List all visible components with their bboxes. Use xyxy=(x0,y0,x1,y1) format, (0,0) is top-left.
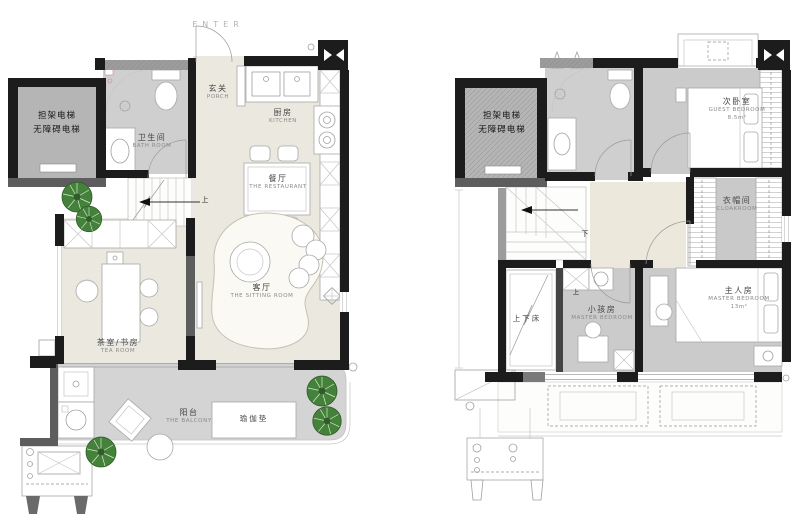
floorplan-drawing xyxy=(0,0,800,525)
second-floor-plan xyxy=(455,34,791,500)
floor2-stairs xyxy=(506,187,586,260)
first-floor-plan xyxy=(8,26,357,514)
floorplan-canvas: ENTER 担架电梯 无障碍电梯 卫生间 BATH ROOM 玄关 PORCH … xyxy=(0,0,800,525)
